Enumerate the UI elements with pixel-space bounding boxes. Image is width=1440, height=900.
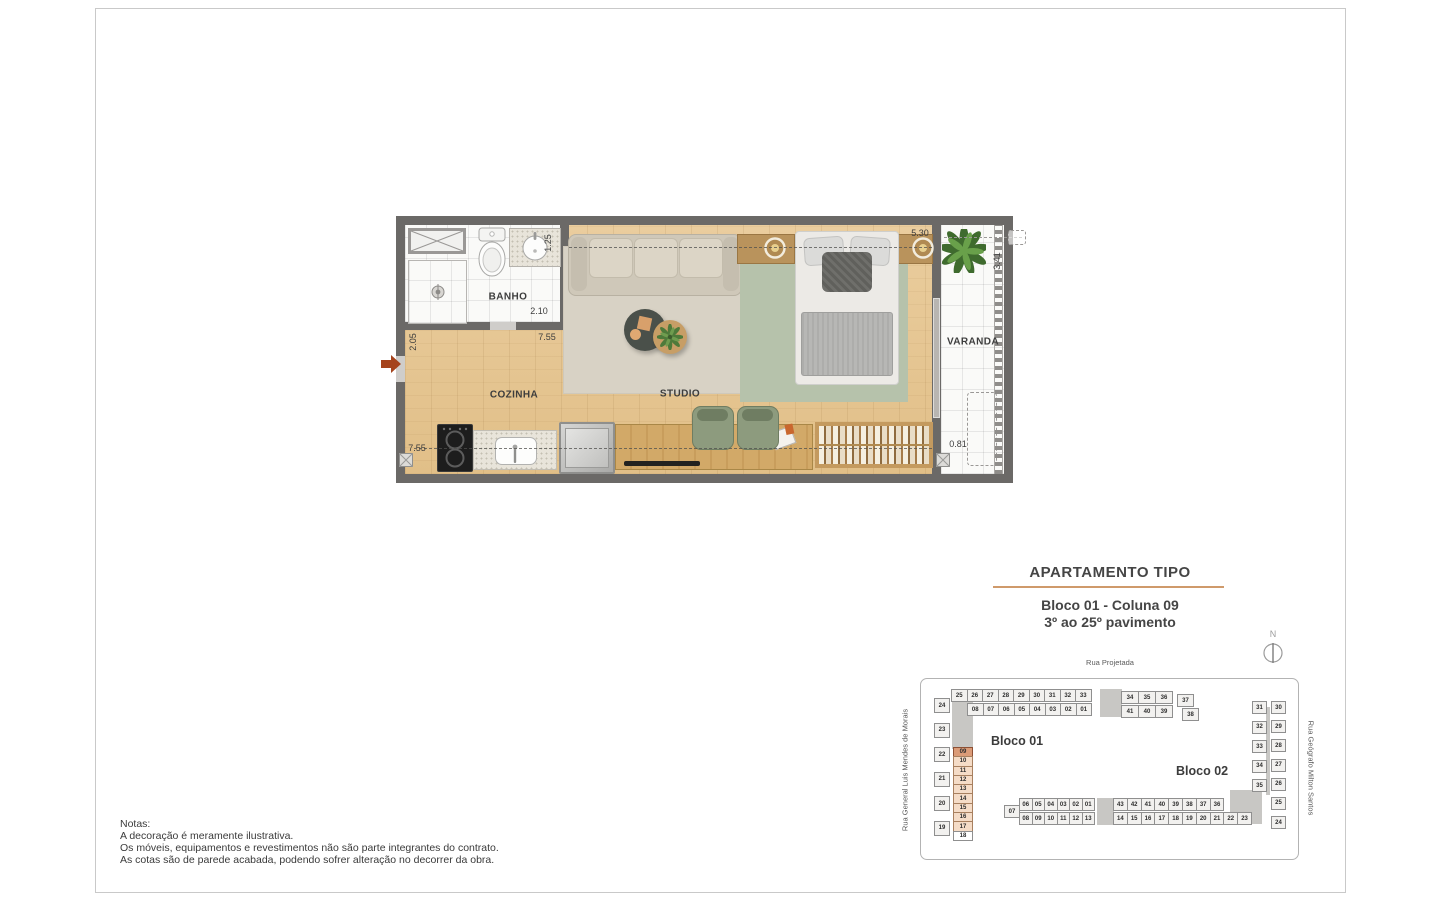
unit-cell: 11 (1057, 812, 1071, 825)
core-block (1100, 689, 1122, 717)
room-label-studio: STUDIO (660, 389, 700, 400)
unit-cell: 05 (1014, 703, 1031, 716)
title-subtitle-1: Bloco 01 - Coluna 09 (960, 597, 1260, 613)
dimension-line-top (569, 247, 932, 248)
entrance-arrow-icon (381, 355, 401, 373)
bloco01-highlighted-column: 09101112131415161718 (953, 748, 973, 841)
bloco02-bottom-row-1: 060504030201 (1020, 798, 1095, 811)
dim-bottom-width: 7.55 (408, 443, 426, 453)
core-block (1097, 798, 1114, 825)
unit-cell: 36 (1210, 798, 1225, 811)
bloco01-top-row-1b: 343536 (1122, 691, 1173, 704)
bloco02-bottom-row-1b: 4342414039383736 (1114, 798, 1224, 811)
unit-cell: 23 (1237, 812, 1252, 825)
unit-cell: 20 (934, 796, 950, 811)
bloco01-left-column: 242322212019 (934, 698, 950, 836)
unit-cell: 34 (1121, 691, 1139, 704)
unit-cell: 36 (1155, 691, 1173, 704)
desk-chair-right (737, 406, 779, 450)
shower-stall (408, 260, 467, 324)
unit-cell: 43 (1113, 798, 1128, 811)
unit-cell: 41 (1141, 798, 1156, 811)
unit-cell: 12 (1069, 812, 1083, 825)
unit-cell: 17 (1154, 812, 1169, 825)
dimension-marker-box (1008, 230, 1026, 245)
bloco02-label: Bloco 02 (1176, 764, 1228, 778)
unit-cell: 21 (1210, 812, 1225, 825)
bloco02-bottom-row-2b: 14151617181920212223 (1114, 812, 1252, 825)
bloco02-right-column-outer: 30292827262524 (1271, 701, 1286, 829)
unit-cell: 32 (1252, 721, 1267, 734)
unit-cell: 39 (1168, 798, 1183, 811)
site-key-plan: 252627282930313233 343536 37 38 08070605… (920, 678, 1299, 860)
unit-cell: 04 (1029, 703, 1046, 716)
varanda-plant-icon (942, 229, 986, 273)
dim-banho: 2.10 (530, 306, 548, 316)
unit-cell: 31 (1044, 689, 1061, 702)
banho-door-threshold (490, 322, 516, 330)
unit-cell: 28 (998, 689, 1015, 702)
kitchen-counter (473, 430, 557, 470)
compass-icon (1262, 641, 1284, 665)
shaft-box (408, 228, 466, 254)
unit-cell: 35 (1252, 779, 1267, 792)
shower-drain-icon (429, 283, 447, 301)
unit-cell: 29 (1013, 689, 1030, 702)
unit-cell: 16 (1141, 812, 1156, 825)
unit-cell: 32 (1060, 689, 1077, 702)
title-subtitle-2: 3º ao 25º pavimento (960, 614, 1260, 630)
bloco02-bottom-row-2: 080910111213 (1020, 812, 1095, 825)
bloco01-top-row-2: 0807060504030201 (968, 703, 1092, 716)
banho-vanity (509, 228, 561, 267)
compass-north-label: N (1262, 629, 1284, 639)
bloco01-top-row-1: 252627282930313233 (952, 689, 1092, 702)
unit-cell: 05 (1032, 798, 1046, 811)
unit-cell: 28 (1271, 739, 1286, 752)
bed-quilt (801, 312, 893, 376)
unit-cell: 21 (934, 772, 950, 787)
unit-cell: 04 (1044, 798, 1058, 811)
unit-cell-07: 07 (1004, 805, 1020, 818)
unit-cell: 14 (1113, 812, 1128, 825)
lamp-right-icon (912, 237, 934, 259)
unit-cell: 01 (1076, 703, 1093, 716)
unit-cell: 42 (1127, 798, 1142, 811)
sofa (568, 234, 742, 296)
bloco02-right-column-inner: 3132333435 (1252, 701, 1267, 792)
bloco01-top-row-2b: 414039 (1122, 705, 1173, 718)
bookshelf (815, 422, 933, 468)
unit-cell: 15 (1127, 812, 1142, 825)
unit-cell: 39 (1155, 705, 1173, 718)
unit-cell: 30 (1029, 689, 1046, 702)
unit-cell: 06 (1019, 798, 1033, 811)
kitchen-faucet-icon (510, 442, 520, 464)
unit-cell: 38 (1182, 798, 1197, 811)
dim-bed-wall: 5.30 (911, 228, 929, 238)
unit-cell: 10 (1044, 812, 1058, 825)
unit-cell: 18 (953, 831, 973, 841)
dimension-line-bottom (414, 448, 932, 449)
unit-cell: 24 (1271, 816, 1286, 829)
varanda-sliding-door (933, 298, 940, 418)
notes-line-3: As cotas são de parede acabada, podendo … (120, 855, 499, 867)
room-label-cozinha: COZINHA (490, 390, 538, 401)
unit-cell: 41 (1121, 705, 1139, 718)
unit-cell: 33 (1075, 689, 1092, 702)
unit-cell: 02 (1060, 703, 1077, 716)
unit-cell: 23 (934, 723, 950, 738)
unit-cell: 01 (1082, 798, 1096, 811)
street-label-top: Rua Projetada (1086, 658, 1134, 667)
dim-top-width: 7.55 (538, 332, 556, 342)
unit-cell: 25 (1271, 797, 1286, 810)
banho-bottom-wall-right (516, 322, 569, 330)
unit-cell: 22 (934, 747, 950, 762)
unit-cell: 27 (982, 689, 999, 702)
knit-blanket (822, 252, 872, 292)
notes: Notas: A decoração é meramente ilustrati… (120, 819, 499, 867)
unit-cell: 03 (1057, 798, 1071, 811)
unit-cell: 40 (1138, 705, 1156, 718)
street-label-left: Rua General Luis Mendes de Morais (901, 709, 910, 831)
ac-condenser-outline (967, 392, 997, 466)
notes-line-2: Os móveis, equipamentos e revestimentos … (120, 843, 499, 855)
unit-cell: 34 (1252, 760, 1267, 773)
page-title: APARTAMENTO TIPO (960, 564, 1260, 581)
unit-cell: 24 (934, 698, 950, 713)
unit-cell: 35 (1138, 691, 1156, 704)
room-label-varanda: VARANDA (947, 337, 999, 348)
unit-cell: 26 (1271, 778, 1286, 791)
unit-cell: 19 (934, 821, 950, 836)
street-label-right: Rua Geógrafo Milton Santos (1307, 721, 1316, 816)
dim-varanda-depth: 3.41 (992, 252, 1002, 270)
wall-shaft-icon (936, 453, 950, 467)
unit-cell: 30 (1271, 701, 1286, 714)
toilet-icon (476, 227, 508, 279)
unit-cell: 02 (1069, 798, 1083, 811)
unit-cell: 18 (1168, 812, 1183, 825)
unit-cell: 13 (1082, 812, 1096, 825)
unit-cell: 20 (1196, 812, 1211, 825)
desk-chair-left (692, 406, 734, 450)
coffee-table-wood (653, 320, 687, 354)
unit-cell: 40 (1154, 798, 1169, 811)
room-label-banho: BANHO (489, 292, 528, 303)
unit-cell: 29 (1271, 720, 1286, 733)
tv (624, 461, 700, 466)
unit-cell: 08 (967, 703, 984, 716)
unit-cell: 08 (1019, 812, 1033, 825)
unit-cell: 07 (983, 703, 1000, 716)
unit-cell-38: 38 (1182, 708, 1199, 721)
wall-shaft-icon (399, 453, 413, 467)
unit-cell: 33 (1252, 740, 1267, 753)
unit-cell: 31 (1252, 701, 1267, 714)
unit-cell: 27 (1271, 759, 1286, 772)
unit-cell: 22 (1223, 812, 1238, 825)
unit-cell: 26 (967, 689, 984, 702)
lamp-left-icon (764, 237, 786, 259)
bed (795, 231, 899, 385)
unit-cell: 25 (951, 689, 968, 702)
unit-cell: 06 (998, 703, 1015, 716)
unit-cell: 19 (1182, 812, 1197, 825)
table-plant-icon (657, 324, 683, 350)
dim-varanda-width: 0.81 (949, 439, 967, 449)
page: BANHO COZINHA STUDIO VARANDA 1.25 2.10 2… (0, 0, 1440, 900)
floor-plan: BANHO COZINHA STUDIO VARANDA 1.25 2.10 2… (396, 216, 1013, 483)
unit-cell: 37 (1196, 798, 1211, 811)
unit-cell: 03 (1045, 703, 1062, 716)
bloco01-label: Bloco 01 (991, 734, 1043, 748)
dim-entry: 2.05 (408, 333, 418, 351)
title-underline (993, 586, 1224, 588)
unit-cell: 09 (1032, 812, 1046, 825)
dim-banho-sink: 1.25 (543, 234, 553, 252)
unit-cell-37: 37 (1177, 694, 1194, 707)
